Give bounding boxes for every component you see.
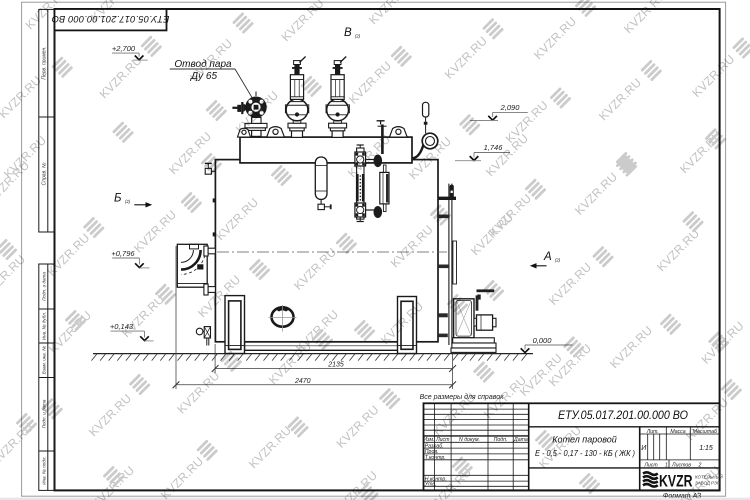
svg-text:(2): (2) [355,34,361,39]
svg-text:+0,796: +0,796 [111,249,135,258]
svg-text:N докум.: N докум. [459,437,480,443]
svg-text:Перв. примен.: Перв. примен. [42,46,48,79]
svg-text:Лист: Лист [435,437,450,443]
svg-text:Листов: Листов [671,462,691,468]
svg-text:Инв. № подл.: Инв. № подл. [42,456,47,485]
svg-text:Утв.: Утв. [425,482,437,488]
svg-text:2135: 2135 [327,362,344,369]
svg-text:Б: Б [114,193,122,205]
svg-text:А: А [543,251,552,263]
svg-text:Инв. № дубл.: Инв. № дубл. [42,312,47,340]
svg-text:2,090: 2,090 [500,103,521,112]
svg-text:Т.контр.: Т.контр. [425,455,446,461]
svg-text:(2): (2) [555,258,561,263]
svg-text:1: 1 [665,462,668,468]
svg-text:(2): (2) [125,199,131,204]
svg-text:Подп. и дата: Подп. и дата [42,272,47,301]
svg-text:Изм.: Изм. [423,437,434,443]
svg-text:Дата: Дата [513,437,528,443]
svg-text:2470: 2470 [294,378,311,385]
svg-text:Взам. инв. №: Взам. инв. № [42,346,47,374]
svg-text:0,000: 0,000 [533,336,553,345]
svg-text:В: В [344,27,352,39]
svg-text:Лист: Лист [643,462,658,468]
svg-text:ЕТУ.05.017.201.00.000 ВО: ЕТУ.05.017.201.00.000 ВО [52,14,170,24]
svg-text:1:15: 1:15 [699,445,713,452]
svg-text:+2,700: +2,700 [112,44,136,53]
svg-text:Подп.: Подп. [494,437,508,443]
svg-text:Лит.: Лит. [646,429,659,435]
svg-text:Подп. и дата: Подп. и дата [42,399,47,428]
svg-text:2: 2 [698,462,702,468]
svg-text:Справ. №: Справ. № [42,162,48,185]
svg-text:ЕТУ.05.017.201.00.000 ВО: ЕТУ.05.017.201.00.000 ВО [558,410,688,422]
